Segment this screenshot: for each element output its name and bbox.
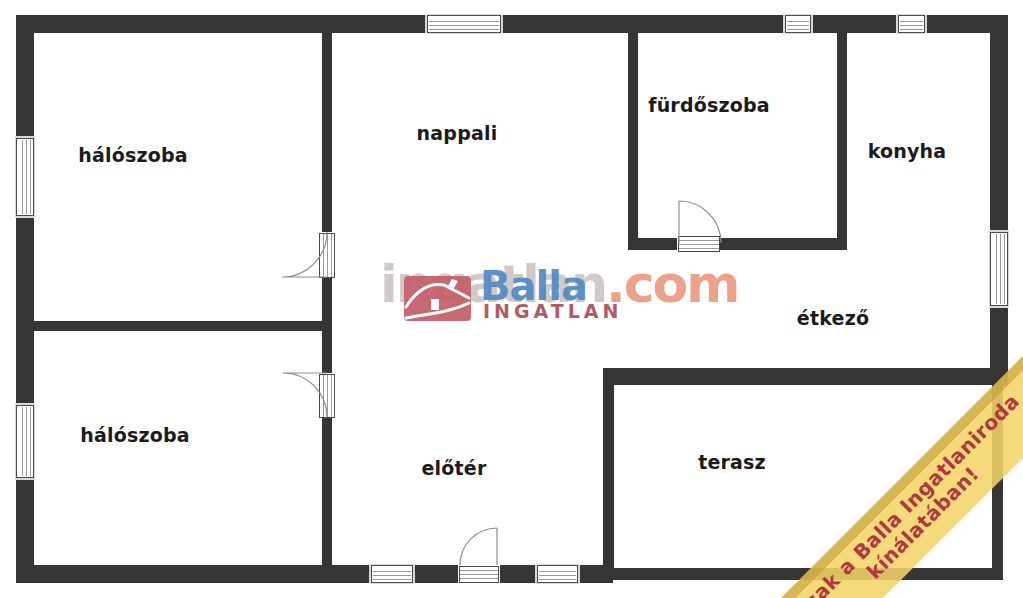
wall-bathroom-left [628, 33, 638, 250]
window-foyer-bottom-2 [535, 564, 580, 584]
wall-bathroom-bottom [628, 238, 847, 250]
wall-outer-left [16, 15, 34, 583]
banner-line-2: kínálatában! [724, 324, 1023, 598]
room-label-foyer: előtér [422, 457, 487, 479]
room-label-living-room: nappali [417, 122, 498, 144]
room-label-dining-room: étkező [797, 307, 869, 329]
window-bedroom1-left [15, 136, 35, 218]
window-frame [427, 15, 501, 33]
room-label-terrace: terasz [698, 451, 766, 473]
window-foyer-bottom-1 [369, 564, 415, 584]
window-frame [16, 405, 34, 478]
room-label-bathroom: fürdőszoba [648, 94, 770, 116]
wall-outer-top [16, 15, 1008, 33]
room-label-bedroom-1: hálószoba [78, 144, 188, 166]
door-sill-bathroom [678, 236, 720, 252]
wall-terrace-left [603, 385, 614, 580]
window-kitchen-right [989, 230, 1009, 308]
window-bedroom2-left [15, 403, 35, 480]
wall-outer-right [990, 15, 1008, 385]
wall-interior-vertical [322, 33, 332, 565]
window-frame [537, 565, 578, 583]
window-kitchen-top [896, 14, 927, 34]
watermark-text-com: .com [606, 254, 739, 314]
window-bathroom-top [783, 14, 813, 34]
wall-outer-bottom [16, 565, 613, 583]
corner-ribbon-banner: Csak a Balla Ingatlaniroda kínálatában! [699, 299, 1023, 598]
window-frame [371, 565, 413, 583]
window-frame [990, 232, 1008, 306]
logo-subtitle-text: INGATLAN [483, 302, 622, 321]
wall-bathroom-right [837, 33, 847, 250]
door-sill-bedroom1 [319, 233, 335, 278]
room-label-bedroom-2: hálószoba [80, 424, 190, 446]
house-roof-icon [404, 276, 471, 321]
floorplan-canvas: hálószoba nappali fürdőszoba konyha étke… [0, 0, 1023, 598]
wall-bedrooms-divider [34, 321, 322, 331]
window-frame [785, 15, 811, 33]
room-label-kitchen: konyha [868, 140, 947, 162]
door-sill-bedroom2 [319, 374, 335, 418]
window-livingroom-top [425, 14, 503, 34]
window-frame [898, 15, 925, 33]
window-frame [16, 138, 34, 216]
door-sill-entrance [459, 566, 499, 583]
wall-dining-bottom [603, 368, 1008, 385]
